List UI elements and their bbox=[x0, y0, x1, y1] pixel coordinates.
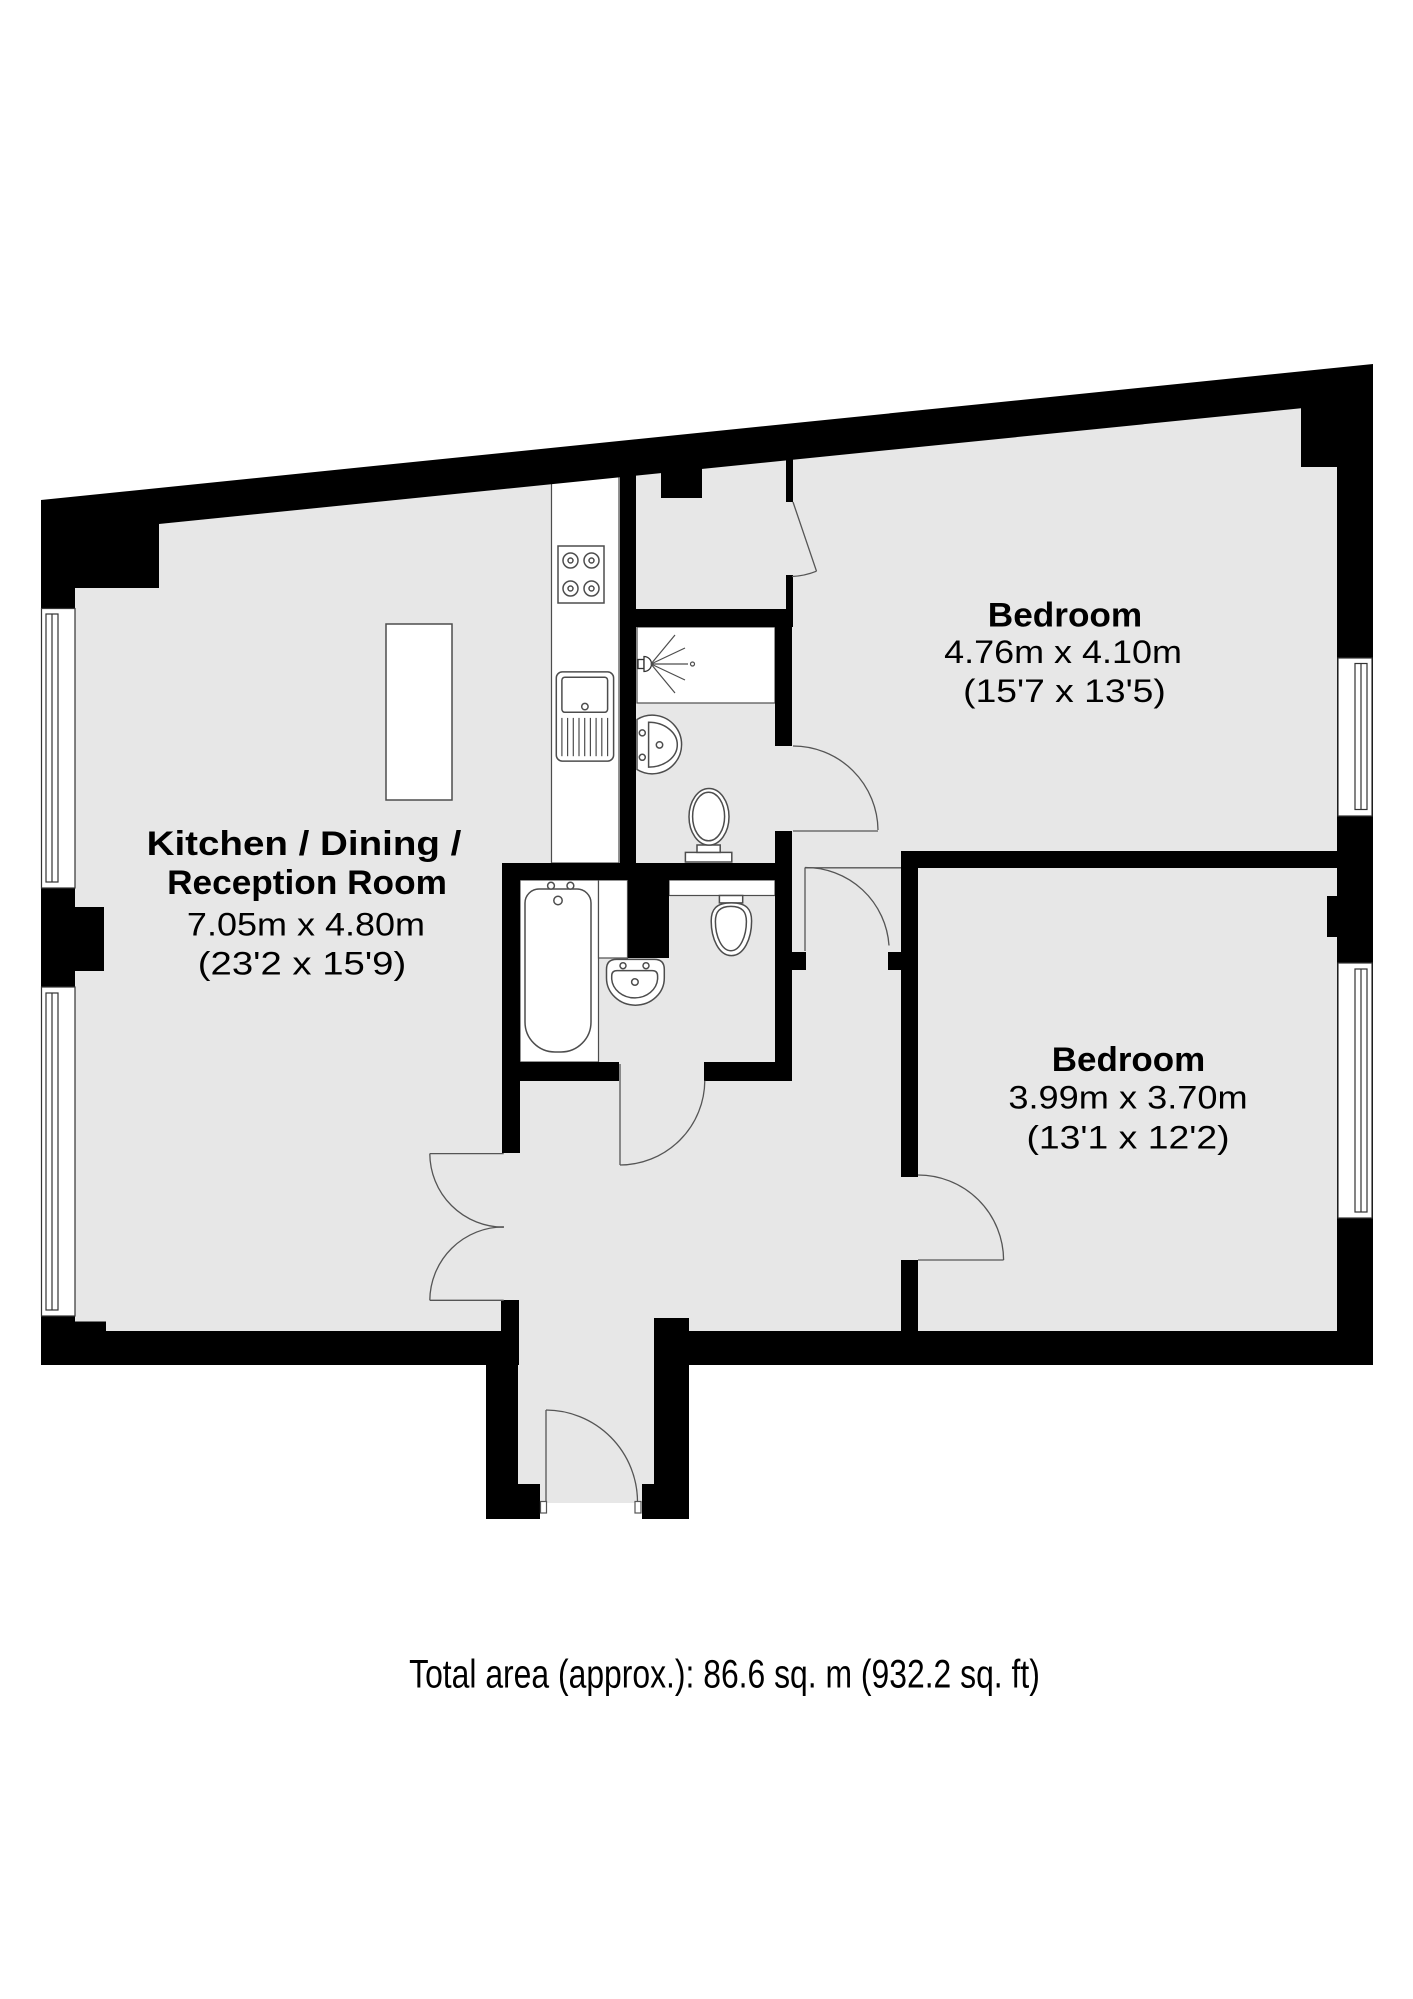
svg-text:Reception Room: Reception Room bbox=[167, 864, 447, 902]
svg-text:7.05m x 4.80m: 7.05m x 4.80m bbox=[187, 907, 425, 943]
svg-text:(15'7 x 13'5): (15'7 x 13'5) bbox=[963, 673, 1166, 709]
svg-text:(23'2 x 15'9): (23'2 x 15'9) bbox=[198, 946, 406, 982]
svg-text:4.76m x 4.10m: 4.76m x 4.10m bbox=[944, 634, 1182, 670]
svg-text:Kitchen / Dining /: Kitchen / Dining / bbox=[147, 825, 462, 863]
svg-text:Bedroom: Bedroom bbox=[1052, 1041, 1205, 1079]
svg-text:Total area (approx.): 86.6 sq.: Total area (approx.): 86.6 sq. m (932.2 … bbox=[409, 1653, 1040, 1697]
svg-text:Bedroom: Bedroom bbox=[988, 597, 1142, 635]
svg-text:3.99m x 3.70m: 3.99m x 3.70m bbox=[1008, 1080, 1247, 1116]
svg-text:(13'1 x 12'2): (13'1 x 12'2) bbox=[1027, 1119, 1230, 1155]
